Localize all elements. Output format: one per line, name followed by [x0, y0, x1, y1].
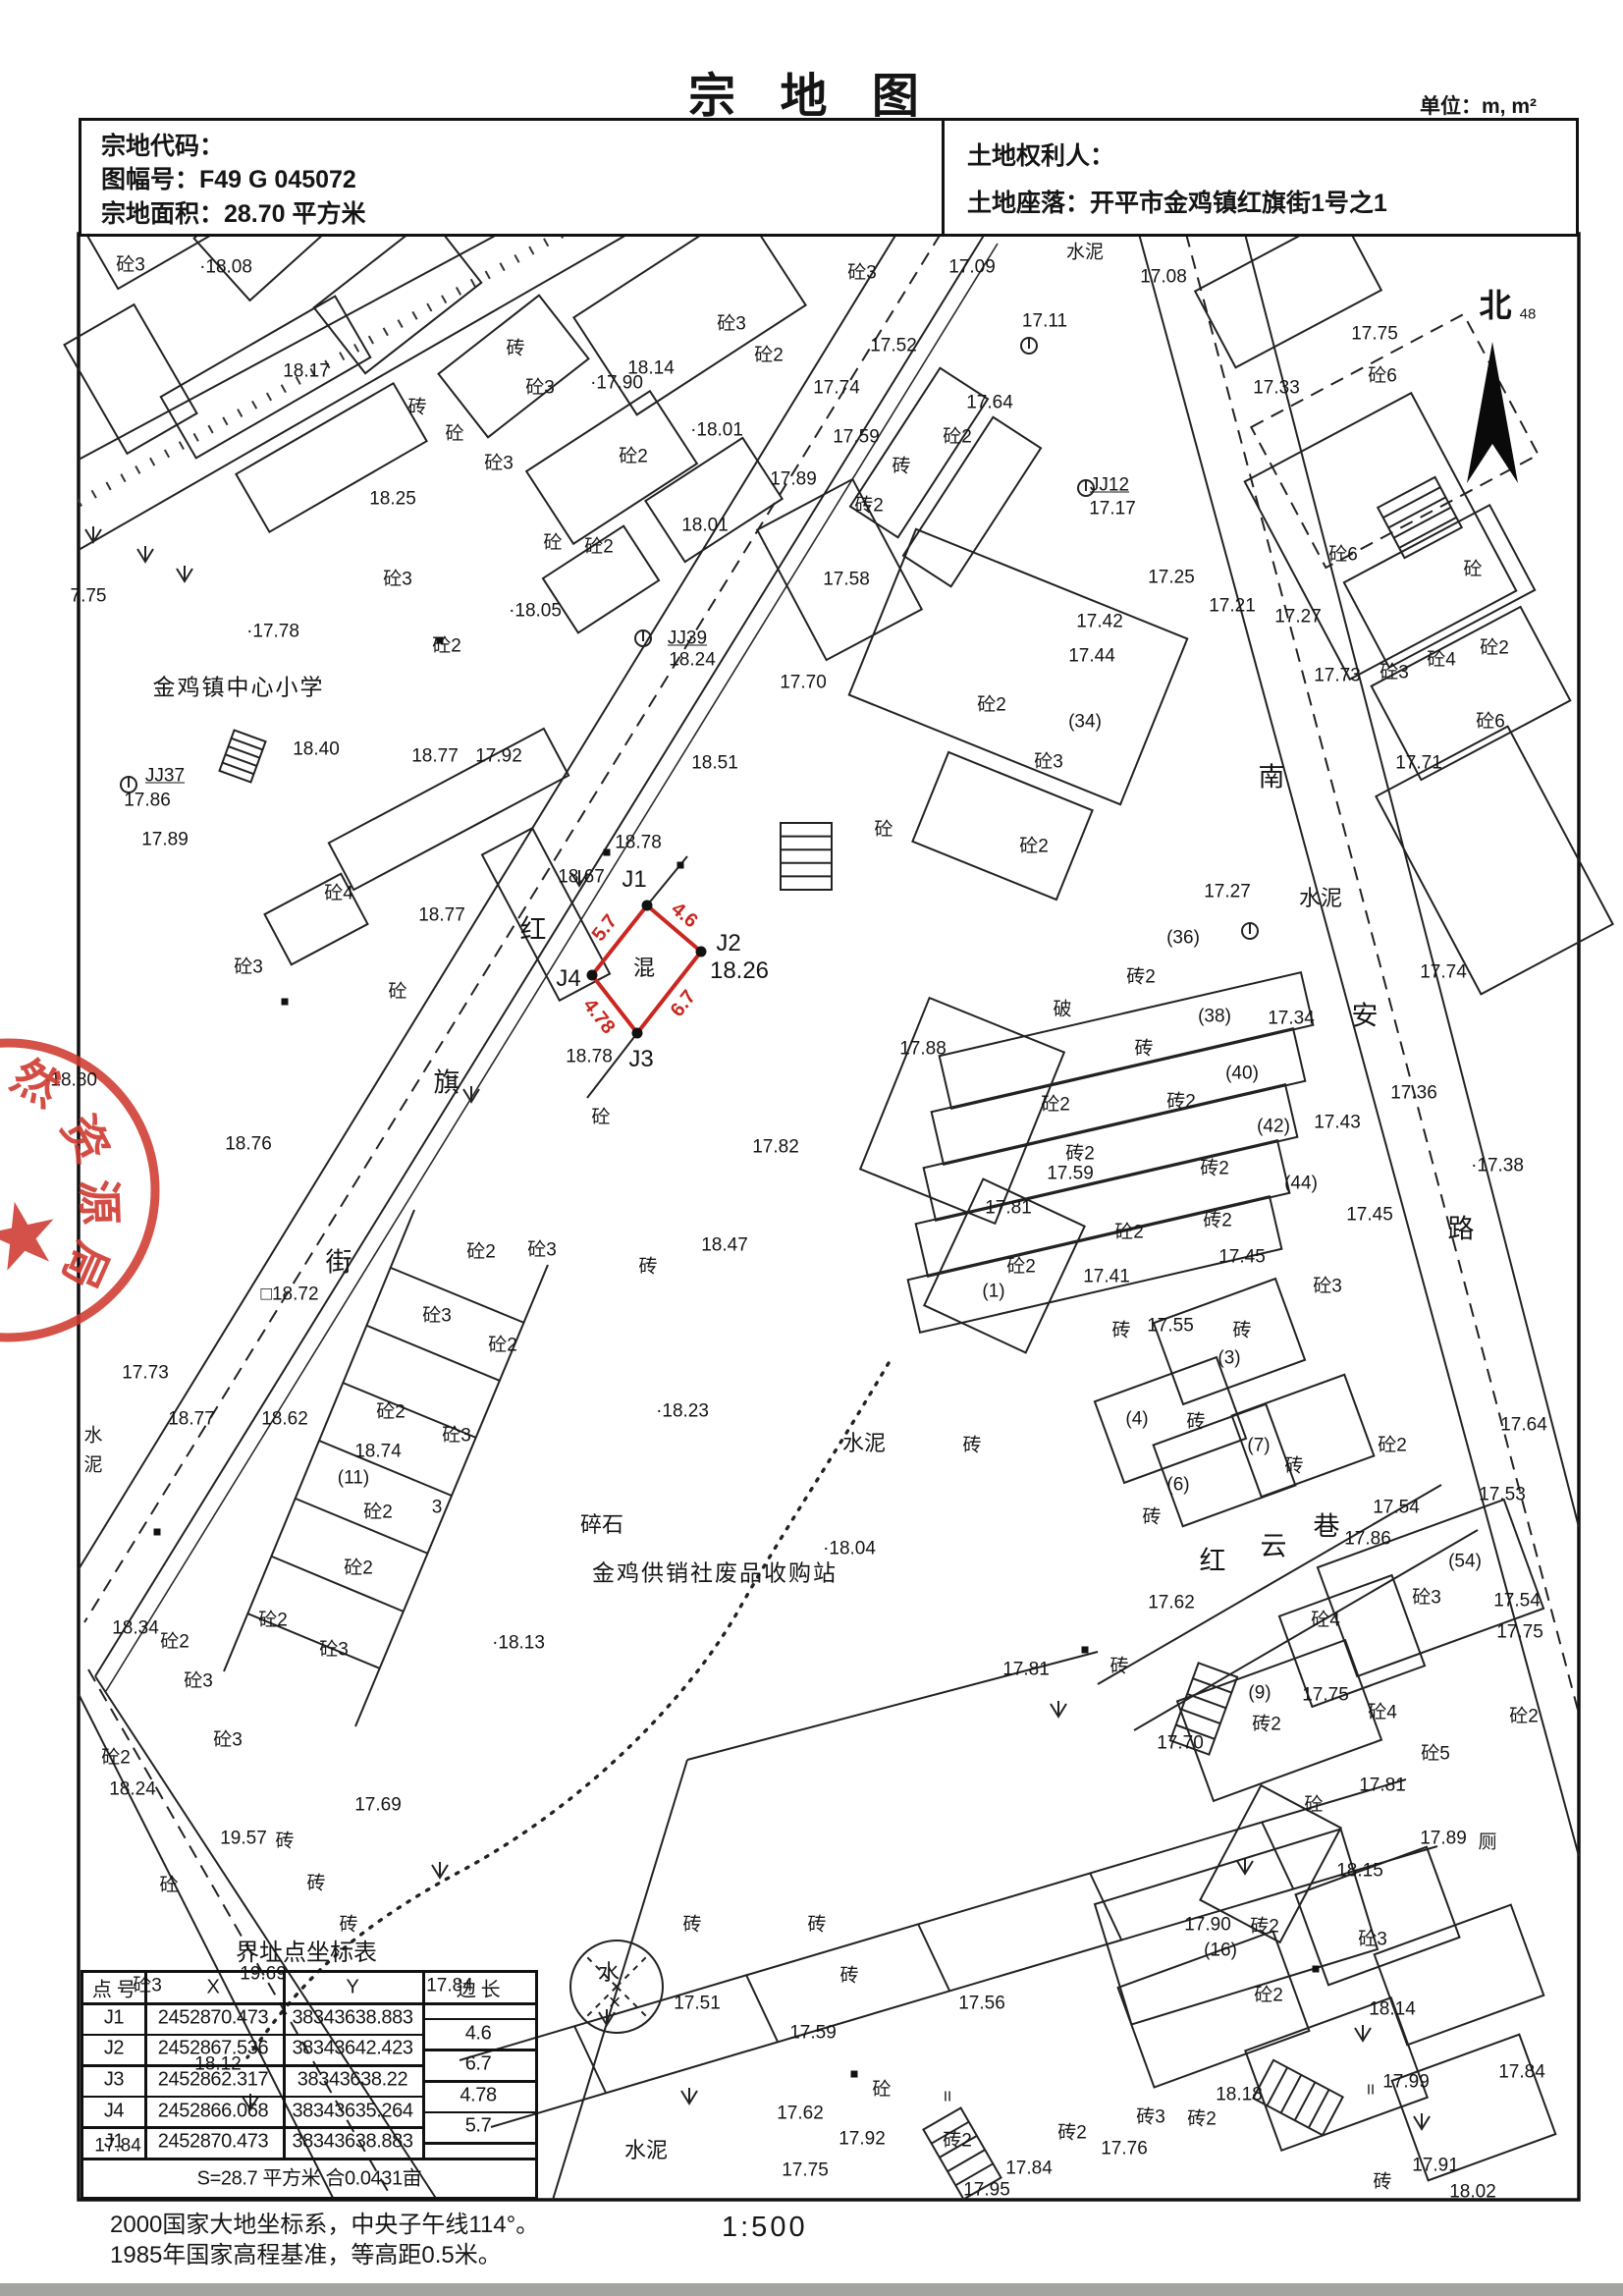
spot-height-icon [1414, 2113, 1430, 2129]
sheet-no-field: 图幅号：F49 G 045072 [101, 160, 356, 195]
table-cell: J3 [104, 2069, 124, 2092]
title-block-divider [942, 121, 945, 234]
boundary-point-label: J1 [622, 868, 646, 892]
map-label: 砖2 [854, 497, 884, 516]
table-cell: 2452870.473 [158, 2006, 268, 2029]
map-label: (6) [1166, 1476, 1189, 1495]
map-label: JJ12 [1090, 476, 1129, 495]
map-label: 砖 [339, 1916, 357, 1935]
map-label: 砖 [1111, 1322, 1130, 1340]
map-label: II [1367, 2083, 1375, 2098]
map-label: 17.43 [1314, 1114, 1361, 1132]
well-mark: × [609, 1992, 622, 2013]
map-label: 红 [1200, 1549, 1226, 1575]
map-label: 17.92 [475, 747, 522, 766]
map-label: 17.95 [963, 2181, 1010, 2200]
map-label: 砼 [543, 534, 562, 553]
map-label: 17.45 [1346, 1206, 1393, 1225]
parcel-code-field: 宗地代码： [101, 127, 224, 162]
stairs-icon [1253, 2060, 1342, 2135]
map-label: 砼2 [363, 1503, 393, 1522]
map-label: 红 [520, 917, 547, 944]
map-label: II [944, 2090, 951, 2105]
map-label: 17.70 [780, 674, 827, 692]
map-label: 18.15 [1336, 1862, 1383, 1881]
boundary-point-label: J4 [556, 967, 580, 991]
map-label: 砼 [874, 821, 893, 840]
spot-height-icon [1051, 1701, 1066, 1717]
map-label: 17.81 [1002, 1661, 1050, 1679]
map-label: JJ39 [668, 629, 707, 648]
map-label: (1) [982, 1283, 1004, 1301]
map-label: 18.01 [681, 517, 729, 535]
map-label: 17.54 [1493, 1592, 1541, 1611]
boundary-point-label: J3 [628, 1048, 653, 1071]
map-label: 砖2 [1057, 2124, 1087, 2143]
boundary-point-label: J2 [716, 932, 740, 956]
map-label: 17.91 [1412, 2157, 1459, 2175]
map-label: 3 [432, 1499, 443, 1517]
map-label: 18.25 [369, 490, 416, 509]
stamp-character: 源 [69, 1178, 135, 1226]
map-label: 砼 [445, 425, 463, 444]
map-label: 48 [1520, 307, 1537, 322]
map-label: 17.55 [1147, 1317, 1194, 1336]
map-label: 砼3 [116, 256, 145, 275]
map-label: 17.21 [1209, 597, 1256, 616]
map-label: 17.27 [1204, 883, 1251, 902]
map-label: 砖 [1109, 1658, 1128, 1676]
map-label: (4) [1125, 1410, 1148, 1429]
table-cell: 38343642.423 [292, 2038, 412, 2060]
map-label: (16) [1204, 1941, 1237, 1960]
map-label: 砼2 [1041, 1096, 1070, 1115]
map-label: 砼3 [847, 264, 877, 283]
col-header: 边 长 [457, 1974, 500, 2002]
map-label: 17.73 [1314, 667, 1361, 685]
map-label: 17.58 [823, 571, 870, 589]
map-label: 18.74 [354, 1443, 402, 1461]
boundary-marker-icon [1082, 1647, 1089, 1654]
map-label: 路 [1448, 1217, 1475, 1243]
boundary-marker-icon [677, 862, 684, 869]
map-label: (9) [1248, 1684, 1271, 1703]
map-label: 砼2 [258, 1612, 288, 1630]
title-block: 宗地代码： 图幅号：F49 G 045072 宗地面积：28.70 平方米 土地… [79, 118, 1579, 237]
unit-label: 单位：m, m² [1420, 90, 1537, 120]
map-label: 17.90 [1184, 1916, 1231, 1935]
col-header: 点 号 [92, 1974, 135, 2002]
map-label: 碎石 [580, 1514, 623, 1536]
map-label: 17.89 [1420, 1830, 1467, 1848]
table-cell: 38343638.22 [298, 2069, 407, 2092]
map-label: 17.81 [985, 1199, 1032, 1218]
boundary-marker-icon [154, 1529, 161, 1536]
north-arrow-icon [1467, 342, 1518, 483]
map-label: 砖2 [1252, 1716, 1281, 1734]
map-label: 18.24 [669, 651, 716, 670]
parcel-strip-bottom [460, 1779, 1437, 2127]
map-label: 砖 [839, 1967, 858, 1986]
map-label: 砼2 [1006, 1258, 1036, 1277]
map-label: 17.84 [1005, 2159, 1053, 2178]
edge-length-cell: 4.6 [465, 2022, 492, 2045]
map-label: ·18.08 [199, 258, 252, 277]
parcel-material-label: 混 [633, 957, 655, 979]
spot-height-icon [432, 1862, 448, 1878]
map-label: 砼4 [1311, 1612, 1340, 1630]
area-summary: S=28.7 平方米 合0.0431亩 [197, 2162, 422, 2191]
map-label: (7) [1247, 1437, 1270, 1455]
map-label: 17.86 [1344, 1530, 1391, 1549]
spot-height-icon [137, 546, 153, 562]
map-label: 17.89 [141, 831, 189, 849]
map-label: 砖 [1232, 1322, 1251, 1340]
map-label: 砼2 [1480, 639, 1509, 658]
boundary-point-icon [632, 1028, 643, 1039]
map-label: 砖2 [1200, 1160, 1229, 1178]
map-label: 17.76 [1101, 2140, 1148, 2159]
map-label: 17.59 [789, 2024, 837, 2043]
map-label: 17.69 [354, 1796, 402, 1815]
map-label: 17.70 [1157, 1734, 1204, 1753]
map-label: ·18.04 [823, 1540, 876, 1558]
map-label: 砼2 [977, 696, 1006, 715]
boundary-point-icon [642, 901, 653, 911]
map-label: ·17.78 [246, 623, 299, 641]
map-label: 砼2 [344, 1559, 373, 1578]
map-label: 砖2 [1187, 2110, 1217, 2129]
spot-height-icon [681, 2088, 697, 2104]
map-label: 17.75 [782, 2161, 829, 2180]
map-label: 17.86 [124, 792, 171, 810]
boundary-point-icon [696, 947, 707, 957]
map-label: 砼4 [1427, 651, 1456, 670]
map-label: 17.64 [1500, 1416, 1547, 1435]
map-label: 南 [1259, 765, 1285, 792]
map-label: ·18.05 [509, 602, 562, 621]
road-nanan-road [1139, 234, 1579, 1856]
map-label: ·17.38 [1471, 1157, 1524, 1175]
map-label: 砖 [1186, 1413, 1205, 1432]
map-label: 17.09 [948, 258, 996, 277]
map-label: 水泥 [1066, 244, 1104, 262]
map-label: 18.62 [261, 1410, 308, 1429]
map-label: 17.42 [1076, 613, 1123, 631]
map-label: 砼3 [1313, 1278, 1342, 1296]
map-label: 17.27 [1274, 608, 1322, 627]
map-label: 17.62 [777, 2105, 824, 2123]
map-label: 砼6 [1328, 546, 1358, 565]
map-label: 17.45 [1218, 1248, 1266, 1267]
map-label: 17.74 [1420, 963, 1467, 982]
map-scale: 1:500 [722, 2212, 808, 2244]
coordinate-table-grid: 点 号 X Y 边 长 J1 2452870.473 38343638.883 … [81, 1970, 538, 2200]
map-label: 17.75 [1351, 325, 1398, 344]
map-label: 17.59 [833, 428, 880, 447]
owner-field: 土地权利人： [967, 137, 1114, 172]
map-label: 砖 [962, 1437, 981, 1455]
map-label: 砖 [506, 340, 524, 358]
map-label: 金鸡供销社废品收购站 [592, 1562, 838, 1585]
map-label: 砼4 [324, 885, 353, 903]
map-label: 18.76 [225, 1135, 272, 1154]
map-label: 17.41 [1083, 1268, 1130, 1286]
map-label: 砖 [275, 1832, 294, 1851]
map-label: 17.99 [1382, 2073, 1430, 2092]
map-label: 17.56 [958, 1995, 1005, 2013]
road-hongqi-street [79, 234, 998, 2200]
map-label: 水泥 [842, 1433, 886, 1454]
table-cell: J1 [104, 2131, 124, 2154]
map-label: (3) [1217, 1349, 1240, 1368]
map-label: JJ37 [145, 767, 185, 786]
map-label: 17.75 [1302, 1686, 1349, 1705]
map-label: 砖 [1134, 1040, 1153, 1059]
map-label: 7.75 [71, 587, 107, 606]
map-label: 17.25 [1148, 569, 1195, 587]
map-label: 砼3 [213, 1731, 243, 1750]
map-label: 砖2 [1126, 968, 1156, 987]
parcel-map-page: 宗 地 图 单位：m, m² 宗地代码： 图幅号：F49 G 045072 宗地… [0, 0, 1623, 2296]
map-label: 砖3 [1136, 2108, 1165, 2127]
map-label: 泥 [83, 1456, 102, 1475]
map-label: 砖 [1142, 1508, 1161, 1527]
map-label: 17.36 [1390, 1084, 1437, 1103]
map-label: 18.77 [411, 747, 459, 766]
edge-length-cell: 5.7 [465, 2115, 492, 2138]
map-label: 砖 [638, 1258, 657, 1277]
map-label: 砖2 [1203, 1212, 1232, 1230]
table-cell: 2452867.536 [158, 2038, 268, 2060]
map-label: 18.67 [558, 868, 605, 887]
map-label: 18.77 [168, 1410, 215, 1429]
stairs-icon [781, 823, 832, 890]
map-label: 砖 [1284, 1457, 1303, 1476]
map-label: 砼3 [383, 571, 412, 589]
map-label: 17.82 [752, 1138, 799, 1157]
north-label: 北 [1480, 290, 1512, 322]
map-label: 砼2 [1114, 1224, 1144, 1242]
map-label: 砼3 [484, 455, 514, 473]
stairs-icon [1378, 477, 1462, 558]
edge-length-cell: 6.7 [465, 2053, 492, 2076]
boundary-marker-icon [604, 849, 611, 856]
col-header: X [207, 1977, 220, 1999]
map-label: 18.51 [691, 754, 738, 773]
map-label: 17.62 [1148, 1594, 1195, 1613]
map-label: 17.52 [870, 337, 917, 355]
map-label: 砖 [892, 458, 910, 476]
map-label: ·18.23 [656, 1402, 709, 1421]
well-label: 水 [598, 1962, 620, 1984]
spot-height-icon [177, 566, 192, 581]
map-label: 砼 [872, 2081, 891, 2100]
map-label: 街 [326, 1250, 352, 1277]
map-label: 水泥 [1299, 888, 1342, 909]
map-label: 砖2 [1250, 1918, 1279, 1937]
map-label: 安 [1352, 1004, 1379, 1030]
map-label: 18.34 [112, 1619, 159, 1638]
map-label: 砼2 [943, 428, 972, 447]
map-label: 金鸡镇中心小学 [153, 677, 325, 699]
map-label: 17.88 [899, 1040, 947, 1059]
boundary-marker-icon [1313, 1966, 1320, 1973]
map-label: 19.57 [220, 1830, 267, 1848]
edge-length-cell: 4.78 [460, 2084, 496, 2106]
map-label: 砖2 [1065, 1145, 1095, 1164]
map-label: 18.47 [701, 1236, 748, 1255]
scanner-edge [0, 2283, 1623, 2296]
table-cell: 2452866.068 [158, 2100, 268, 2122]
map-label: 砼2 [160, 1633, 189, 1652]
map-label: 18.17 [283, 362, 330, 381]
location-field: 土地座落：开平市金鸡镇红旗街1号之1 [967, 184, 1387, 219]
map-label: 17.17 [1089, 500, 1136, 519]
col-header: Y [347, 1977, 359, 1999]
map-label: 厕 [1478, 1833, 1496, 1852]
map-label: 砼2 [1254, 1987, 1283, 2005]
map-label: 砼3 [1380, 664, 1409, 683]
map-label: (11) [338, 1469, 369, 1488]
map-label: (44) [1284, 1175, 1318, 1193]
parcel-area-field: 宗地面积：28.70 平方米 [101, 194, 366, 230]
map-label: 砼3 [527, 1241, 557, 1260]
map-label: 17.71 [1395, 754, 1442, 773]
boundary-marker-icon [282, 999, 289, 1006]
map-label: 18.77 [418, 906, 465, 925]
table-cell: J4 [104, 2100, 124, 2122]
map-label: 砼 [591, 1109, 610, 1127]
note-line: 2000国家大地坐标系，中央子午线114°。 [110, 2210, 539, 2240]
map-label: 18.18 [1216, 2086, 1263, 2105]
map-label: 18.40 [293, 740, 340, 759]
spot-height-icon [1355, 2025, 1371, 2041]
survey-notes: 2000国家大地坐标系，中央子午线114°。 1985年国家高程基准，等高距0.… [110, 2210, 539, 2270]
map-label: 17.73 [122, 1364, 169, 1383]
map-label: 砼 [159, 1877, 178, 1895]
map-label: 砼3 [717, 315, 746, 334]
boundary-point-icon [587, 970, 598, 981]
stairs-icon [220, 731, 266, 783]
map-label: 砼3 [525, 379, 555, 398]
map-label: 砼2 [1509, 1708, 1539, 1726]
map-label: 17.54 [1373, 1499, 1420, 1517]
map-label: 砼2 [488, 1337, 517, 1355]
map-label: 砖 [306, 1875, 325, 1893]
map-label: 砼2 [1019, 838, 1049, 856]
map-label: 砼3 [1034, 753, 1063, 772]
map-label: 17.34 [1268, 1010, 1315, 1028]
map-label: 17.89 [770, 470, 817, 489]
map-label: 砼3 [234, 958, 263, 977]
map-label: 砼2 [584, 538, 614, 557]
map-label: (54) [1448, 1553, 1482, 1571]
map-label: 17.64 [966, 394, 1013, 412]
map-label: 云 [1261, 1534, 1287, 1560]
map-label: ·18.01 [690, 421, 743, 440]
map-label: 砼2 [432, 637, 461, 656]
map-label: 17.44 [1068, 647, 1115, 666]
map-label: 砼2 [1378, 1437, 1407, 1455]
map-label: ·17.90 [590, 374, 643, 393]
map-label: 砖 [1373, 2173, 1391, 2192]
map-label: 17.75 [1496, 1623, 1543, 1642]
map-label: 17.92 [839, 2130, 886, 2149]
map-label: 18.14 [1369, 2000, 1416, 2019]
map-label: 17.33 [1253, 379, 1300, 398]
page-title: 宗 地 图 [0, 57, 1623, 126]
map-label: 巷 [1314, 1514, 1340, 1541]
map-label: 砼5 [1421, 1745, 1450, 1764]
map-label: 17.59 [1047, 1165, 1094, 1183]
map-label: 17.81 [1359, 1777, 1406, 1795]
map-label: 17.74 [813, 379, 860, 398]
map-label: 砖 [807, 1916, 826, 1935]
map-label: 18.02 [1449, 2183, 1496, 2202]
map-label: 砼2 [619, 448, 648, 466]
map-label: 水 [83, 1427, 102, 1446]
map-label: 砼3 [442, 1427, 471, 1446]
table-cell: 2452870.473 [158, 2131, 268, 2154]
map-label: 砼3 [1412, 1589, 1441, 1608]
map-label: □18.72 [260, 1285, 318, 1304]
map-label: (36) [1166, 929, 1200, 948]
coordinate-table-title: 界址点坐标表 [81, 1933, 532, 1967]
map-label: 砼6 [1368, 367, 1397, 386]
map-label: 17.08 [1140, 268, 1187, 287]
map-label: 砼 [1304, 1796, 1323, 1815]
map-label: 砖2 [943, 2132, 972, 2151]
map-label: 18.78 [566, 1048, 613, 1066]
map-label: 砼2 [101, 1749, 131, 1768]
map-label: 破 [1053, 1001, 1071, 1019]
map-label: 17.53 [1479, 1486, 1526, 1504]
note-line: 1985年国家高程基准，等高距0.5米。 [110, 2240, 539, 2270]
map-label: 18.24 [109, 1780, 156, 1799]
map-label: 砼4 [1368, 1704, 1397, 1722]
map-label: 砼 [388, 983, 406, 1002]
parcel-elevation: 18.26 [710, 959, 769, 983]
map-label: 砼2 [466, 1243, 496, 1262]
boundary-line [553, 1760, 687, 2200]
map-label: 砼3 [319, 1641, 349, 1660]
table-cell: 2452862.317 [158, 2069, 268, 2092]
map-label: 旗 [434, 1070, 460, 1097]
map-label: 砼6 [1476, 713, 1505, 732]
table-cell: J2 [104, 2038, 124, 2060]
map-label: 水泥 [624, 2140, 668, 2161]
map-label: 砼3 [422, 1307, 452, 1326]
map-label: (38) [1198, 1008, 1231, 1026]
map-label: (42) [1257, 1118, 1290, 1136]
map-label: 17.84 [1498, 2063, 1545, 2082]
map-label: (40) [1225, 1065, 1259, 1083]
map-label: 砼2 [376, 1403, 406, 1422]
map-label: 砼3 [1358, 1931, 1387, 1949]
table-cell: 38343638.883 [292, 2131, 412, 2154]
map-label: 砖 [682, 1916, 701, 1935]
map-label: 砼2 [754, 347, 784, 365]
map-label: (34) [1068, 713, 1102, 732]
map-label: ·18.13 [492, 1634, 545, 1653]
map-label: 17.51 [674, 1995, 721, 2013]
map-label: 砖 [407, 399, 426, 417]
table-cell: 38343638.883 [292, 2006, 412, 2029]
map-label: 18.78 [615, 834, 662, 852]
boundary-marker-icon [851, 2071, 858, 2078]
map-label: 砖2 [1166, 1093, 1196, 1112]
